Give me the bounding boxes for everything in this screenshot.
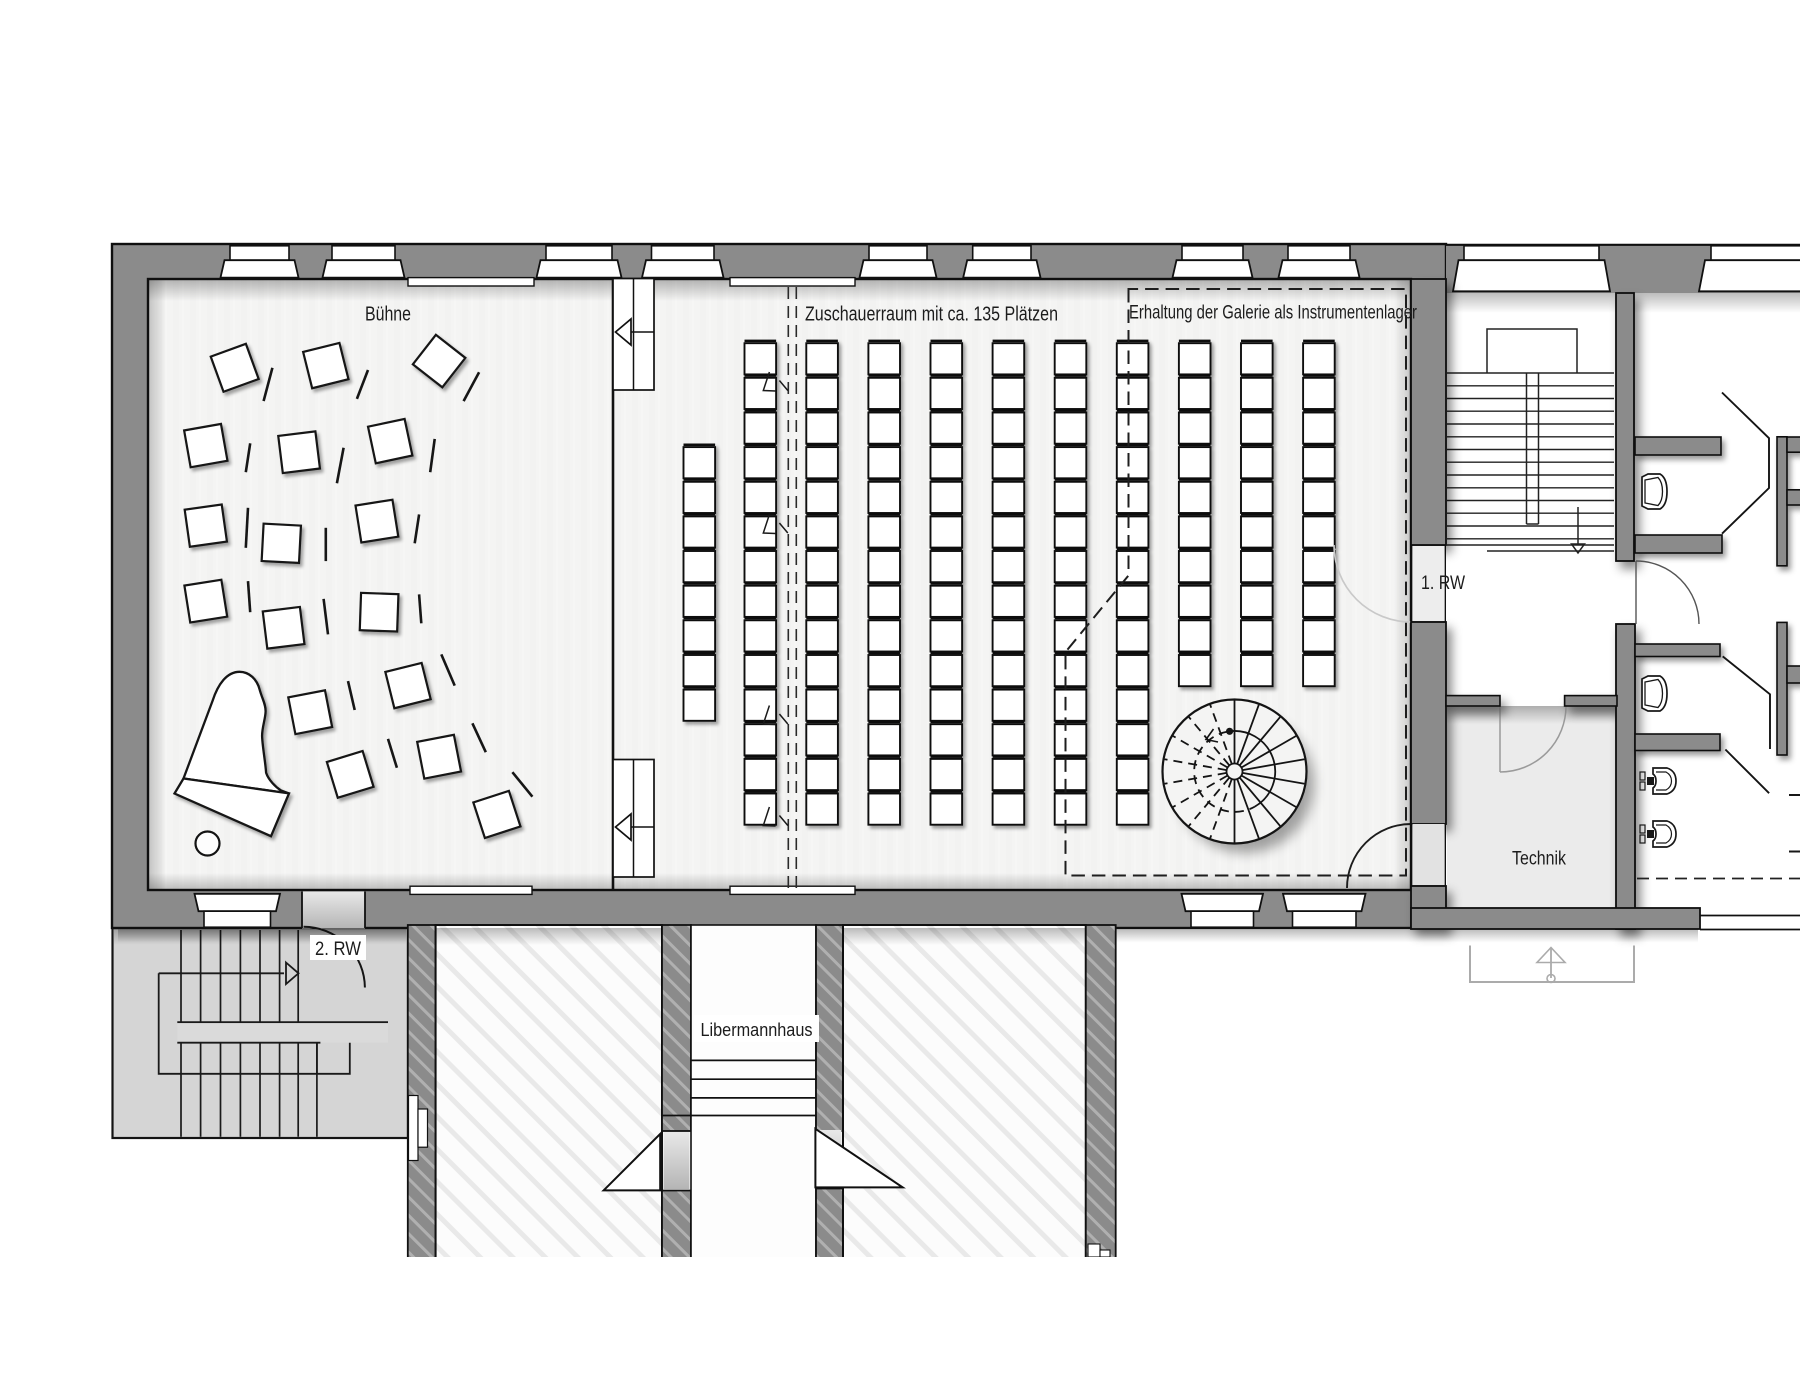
svg-text:Zuschauerraum mit ca. 135 Plät: Zuschauerraum mit ca. 135 Plätzen (805, 304, 1058, 326)
svg-text:Technik: Technik (1512, 848, 1566, 870)
svg-text:1. RW: 1. RW (1421, 572, 1465, 594)
svg-text:Erhaltung der Galerie als Inst: Erhaltung der Galerie als Instrumentenla… (1129, 302, 1417, 324)
svg-text:2. RW: 2. RW (315, 938, 361, 960)
svg-text:Bühne: Bühne (365, 303, 411, 326)
svg-text:Libermannhaus: Libermannhaus (701, 1019, 813, 1040)
